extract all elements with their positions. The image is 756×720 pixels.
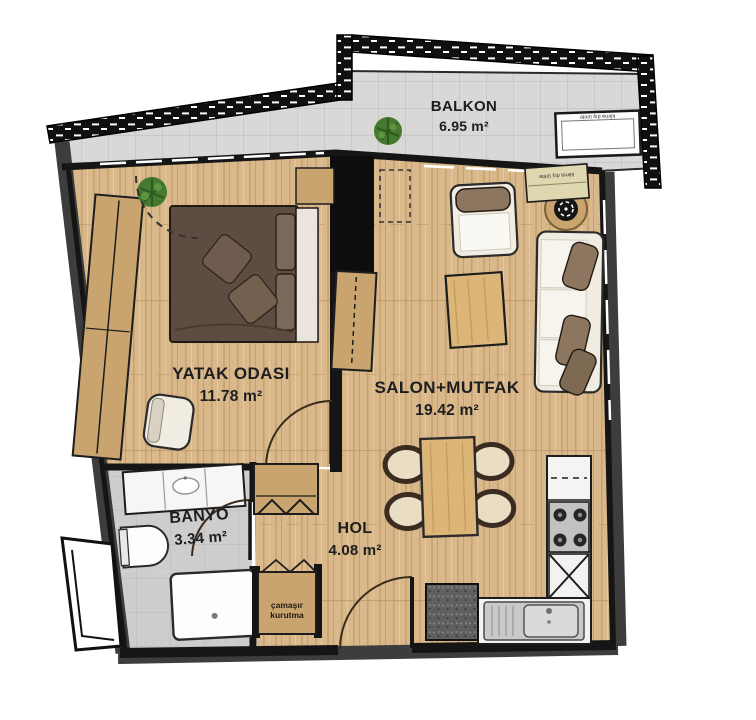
kitchen-counter [547, 456, 591, 598]
floor-plan: klima dış ünite [0, 0, 756, 720]
room-name: HOL [328, 518, 381, 540]
sofa [535, 231, 604, 397]
armchair [450, 182, 518, 257]
room-label-balkon: BALKON 6.95 m² [431, 96, 498, 137]
room-name: SALON+MUTFAK [374, 376, 519, 400]
stove [549, 502, 589, 552]
room-label-hol: HOL 4.08 m² [328, 518, 381, 561]
room-name: BALKON [431, 96, 498, 117]
room-label-salon-mutfak: SALON+MUTFAK 19.42 m² [374, 376, 519, 421]
room-area: 4.08 m² [328, 540, 381, 561]
ac-unit-box: klima dış ünite [525, 164, 589, 202]
tv-unit [331, 271, 376, 371]
room-area: 3.34 m² [170, 526, 231, 551]
room-area: 19.42 m² [374, 400, 519, 422]
room-name: YATAK ODASI [172, 362, 289, 386]
room-label-yatak-odasi: YATAK ODASI 11.78 m² [172, 362, 289, 407]
room-area: 6.95 m² [431, 117, 498, 137]
room-area: 11.78 m² [172, 386, 289, 408]
shower-tray [170, 570, 257, 640]
bed-pillow [276, 274, 295, 330]
ac-outdoor-unit: klima dış ünite [555, 111, 640, 158]
sink [484, 602, 584, 640]
room-label-banyo: BANYO 3.34 m² [169, 504, 232, 551]
fridge [426, 584, 478, 640]
bed-headboard [296, 208, 318, 342]
laundry-cabinet: çamaşır kurutma [252, 560, 322, 638]
installation-shaft [62, 538, 121, 650]
floor-plan-drawing: klima dış ünite [0, 0, 756, 720]
toilet [119, 524, 170, 567]
nightstand [296, 168, 334, 204]
laundry-label-line1: çamaşır [271, 600, 304, 610]
dishwasher [549, 554, 589, 598]
kitchen-sink-counter [478, 598, 591, 644]
bed [170, 206, 318, 342]
hall-closet [254, 464, 318, 514]
coffee-table [446, 272, 507, 348]
laundry-label-line2: kurutma [270, 610, 304, 620]
shaft [330, 156, 374, 272]
ac-unit-label: klima dış ünite [580, 112, 615, 119]
plant-icon [374, 117, 402, 145]
bed-pillow [276, 214, 295, 270]
